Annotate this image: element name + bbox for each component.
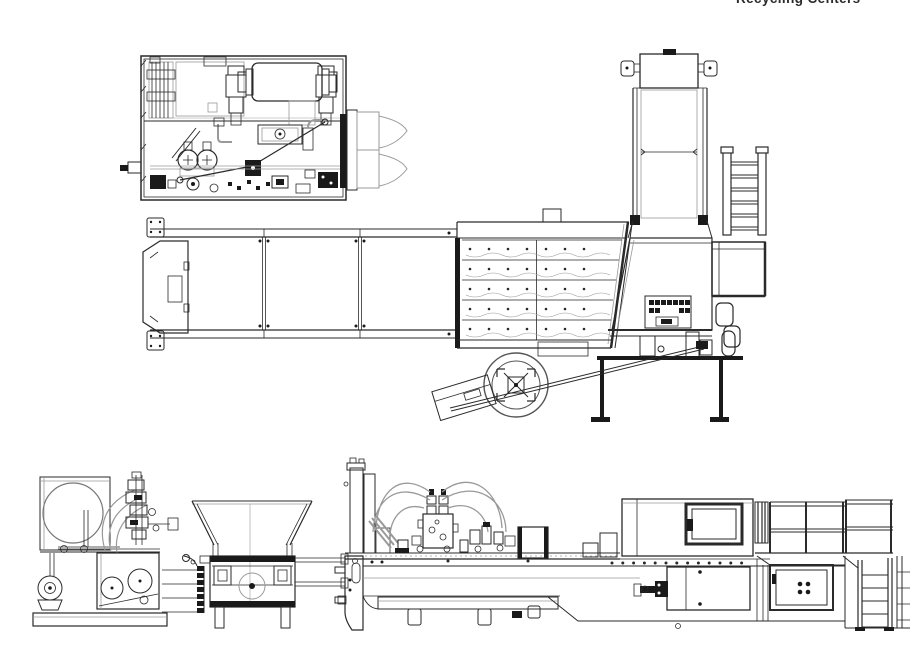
reservoir-tank	[97, 553, 159, 609]
side-elevation-view	[335, 458, 910, 631]
feed-grid-plan	[455, 209, 632, 356]
plan-view	[120, 49, 768, 422]
hopper-box-side	[622, 499, 753, 556]
access-ladder-plan[interactable]	[721, 147, 768, 235]
handwheel[interactable]	[484, 353, 548, 417]
vertical-tower-plan	[621, 49, 717, 238]
hydraulic-manifold	[418, 489, 458, 548]
panel-buttons[interactable]	[649, 300, 690, 313]
bale-door[interactable]	[770, 565, 833, 610]
hydraulic-power-unit-elevation	[33, 472, 204, 626]
conveyor-cross-members	[259, 229, 451, 338]
accumulator-tower	[344, 458, 398, 553]
support-frame	[591, 356, 743, 422]
platform-plan	[712, 242, 765, 296]
valve-stack	[126, 472, 178, 545]
pressure-gauges	[178, 142, 217, 176]
blueprint-canvas: Recycling Centers	[0, 0, 916, 649]
hopper-cross-section	[192, 501, 348, 628]
machine-body-side	[335, 556, 910, 630]
conveyor-end-cap	[143, 241, 189, 333]
ejector-box	[634, 567, 750, 610]
feed-conveyor-plan	[143, 218, 457, 350]
access-ladder-side[interactable]	[843, 556, 894, 631]
comb-fingers	[162, 555, 204, 614]
tie-rod	[432, 341, 708, 421]
blower-funnels	[340, 110, 407, 190]
end-elevation-view	[33, 472, 348, 628]
power-pack-plan	[120, 56, 346, 200]
baler-technical-drawing	[0, 0, 916, 649]
pump-motor	[38, 553, 62, 610]
guard-railing	[755, 500, 893, 553]
grid-slats	[462, 240, 622, 340]
funnel-upper	[357, 112, 407, 150]
control-panel	[645, 296, 691, 328]
funnel-lower	[357, 150, 407, 188]
